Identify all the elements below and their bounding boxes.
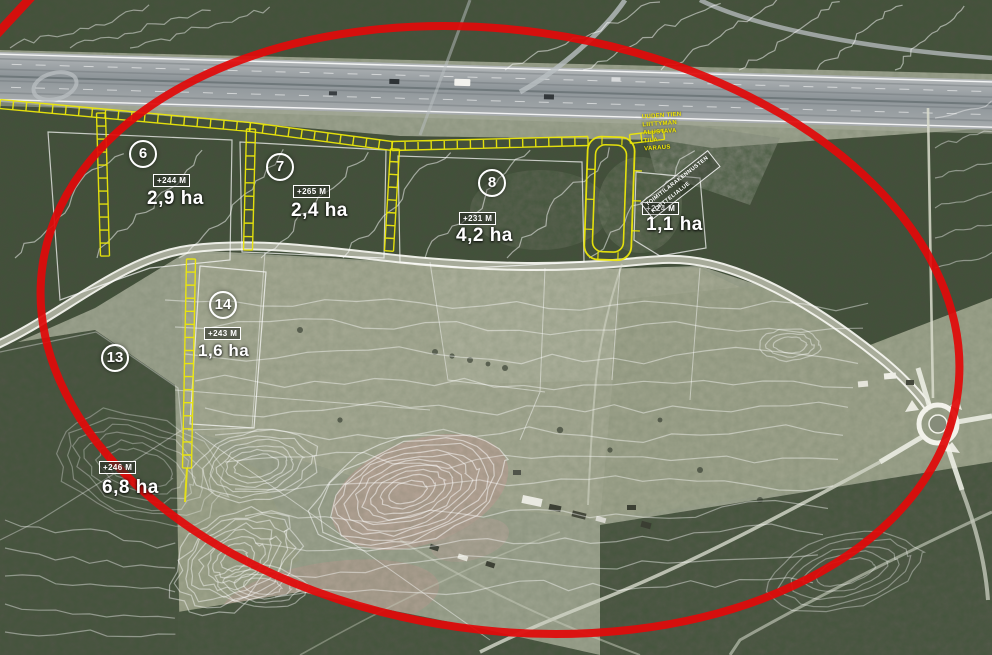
parcel-6-number-circle: 6 [129,140,157,168]
parcel-13-number-circle: 13 [101,344,129,372]
parcel-14-number-circle: 14 [209,291,237,319]
parcel-14-area-label: 1,6 ha [198,341,249,361]
parcel-8-elevation-badge: +231 M [459,212,496,225]
parcel-8-area-label: 4,2 ha [456,225,513,247]
road-note: UUDEN TIEN LIITTYMÄN ALUSTAVA TILA- VARA… [642,111,684,154]
parcel-68-elevation-badge: +246 M [99,461,136,474]
plan-map-screenshot: 6 7 8 14 13 +244 M +265 M +231 M +243 M … [0,0,992,655]
parcel-6-area-label: 2,9 ha [147,188,204,210]
parcel-68-area-label: 6,8 ha [102,477,159,499]
parcel-7-area-label: 2,4 ha [291,200,348,222]
parcel-7-number-circle: 7 [266,153,294,181]
parcel-14-elevation-badge: +243 M [204,327,241,340]
parcel-7-elevation-badge: +265 M [293,185,330,198]
parcel-8-number-circle: 8 [478,169,506,197]
parcel-6-elevation-badge: +244 M [153,174,190,187]
aerial-map-svg [0,0,992,655]
